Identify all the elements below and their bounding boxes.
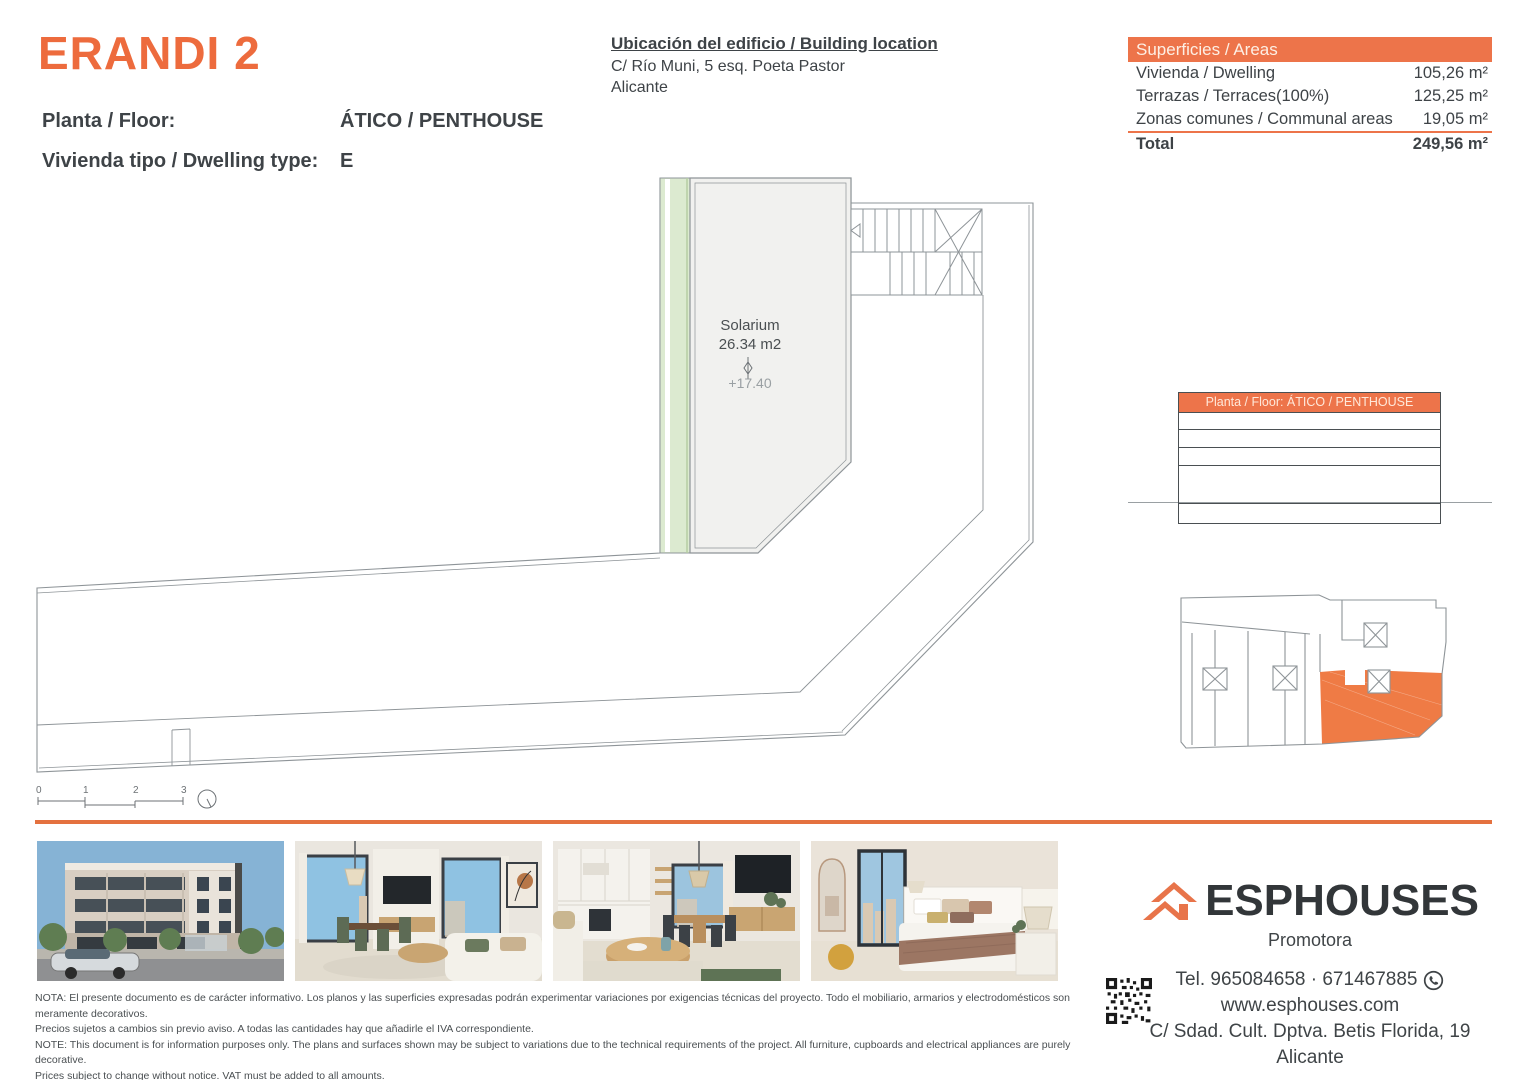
table-row: Terrazas / Terraces(100%) 125,25 m² [1128,85,1492,108]
floor-plan-drawing: Solarium 26.34 m2 +17.40 0 1 2 3 [0,160,1060,825]
floor-mini-table: Planta / Floor: ÁTICO / PENTHOUSE [1178,392,1441,524]
phone-line: Tel. 965084658 · 671467885 [1095,967,1525,993]
esphouses-logo: ESPHOUSES [1095,872,1525,930]
building-location-city: Alicante [611,77,938,98]
level-value: +17.40 [728,375,771,391]
table-row [1179,412,1440,429]
note-line: Precios sujetos a cambios sin previo avi… [35,1022,1100,1038]
photo-living-room [295,841,542,981]
area-row-label: Vivienda / Dwelling [1136,63,1275,84]
areas-total-row: Total 249,56 m² [1128,131,1492,154]
note-line: NOTE: This document is for information p… [35,1038,1100,1069]
planter-strip [660,178,690,553]
building-location-title: Ubicación del edificio / Building locati… [611,33,938,54]
area-row-label: Zonas comunes / Communal areas [1136,109,1393,130]
whatsapp-icon [1423,970,1444,991]
address-city: Alicante [1095,1045,1525,1071]
table-row [1179,429,1440,447]
page-title: ERANDI 2 [38,26,261,80]
areas-table-header: Superficies / Areas [1128,37,1492,62]
legal-notes: NOTA: El presente documento es de caráct… [35,991,1100,1080]
qr-code [1106,978,1152,1024]
photo-bedroom [811,841,1058,981]
table-row [1179,503,1440,523]
phone-number: Tel. 965084658 · 671467885 [1176,967,1418,993]
area-row-value: 125,25 m² [1414,86,1488,107]
areas-total-value: 249,56 m² [1413,134,1488,153]
photo-kitchen-dining [553,841,800,981]
floor-label: Planta / Floor: [42,110,175,133]
building-location: Ubicación del edificio / Building locati… [611,33,938,98]
north-arrow-icon [198,790,216,808]
scale-bar [38,797,183,808]
scale-tick: 0 [36,785,42,796]
brochure-page: ERANDI 2 Planta / Floor: ÁTICO / PENTHOU… [0,0,1527,1080]
solarium-room [690,178,851,553]
website-link[interactable]: www.esphouses.com [1095,993,1525,1019]
developer-contact-block: ESPHOUSES Promotora Tel. 965084658 · 671… [1095,872,1525,1071]
areas-total-label: Total [1136,134,1174,153]
building-location-street: C/ Río Muni, 5 esq. Poeta Pastor [611,56,938,77]
scale-tick: 2 [133,785,139,796]
address-line: C/ Sdad. Cult. Dptva. Betis Florida, 19 [1095,1019,1525,1045]
table-row: Vivienda / Dwelling 105,26 m² [1128,62,1492,85]
areas-table: Superficies / Areas Vivienda / Dwelling … [1128,37,1492,154]
area-row-value: 19,05 m² [1423,109,1488,130]
floor-value: ÁTICO / PENTHOUSE [340,110,543,133]
site-key-plan [1160,580,1520,780]
floor-mini-table-header: Planta / Floor: ÁTICO / PENTHOUSE [1179,393,1440,412]
room-label: Solarium [720,317,779,334]
house-icon [1141,874,1201,928]
note-line: NOTA: El presente documento es de caráct… [35,991,1100,1022]
table-row [1179,447,1440,465]
divider [35,820,1492,824]
table-row: Zonas comunes / Communal areas 19,05 m² [1128,108,1492,131]
brand-name: ESPHOUSES [1205,876,1479,926]
area-row-value: 105,26 m² [1414,63,1488,84]
room-area-label: 26.34 m2 [719,336,782,353]
table-row [1179,465,1440,503]
photo-building-exterior [37,841,284,981]
stair-core-icon [1203,623,1390,693]
staircase [851,209,982,295]
scale-tick: 1 [83,785,89,796]
brand-subtitle: Promotora [1095,930,1525,951]
scale-tick: 3 [181,785,187,796]
note-line: Prices subject to change without notice.… [35,1069,1100,1080]
area-row-label: Terrazas / Terraces(100%) [1136,86,1329,107]
